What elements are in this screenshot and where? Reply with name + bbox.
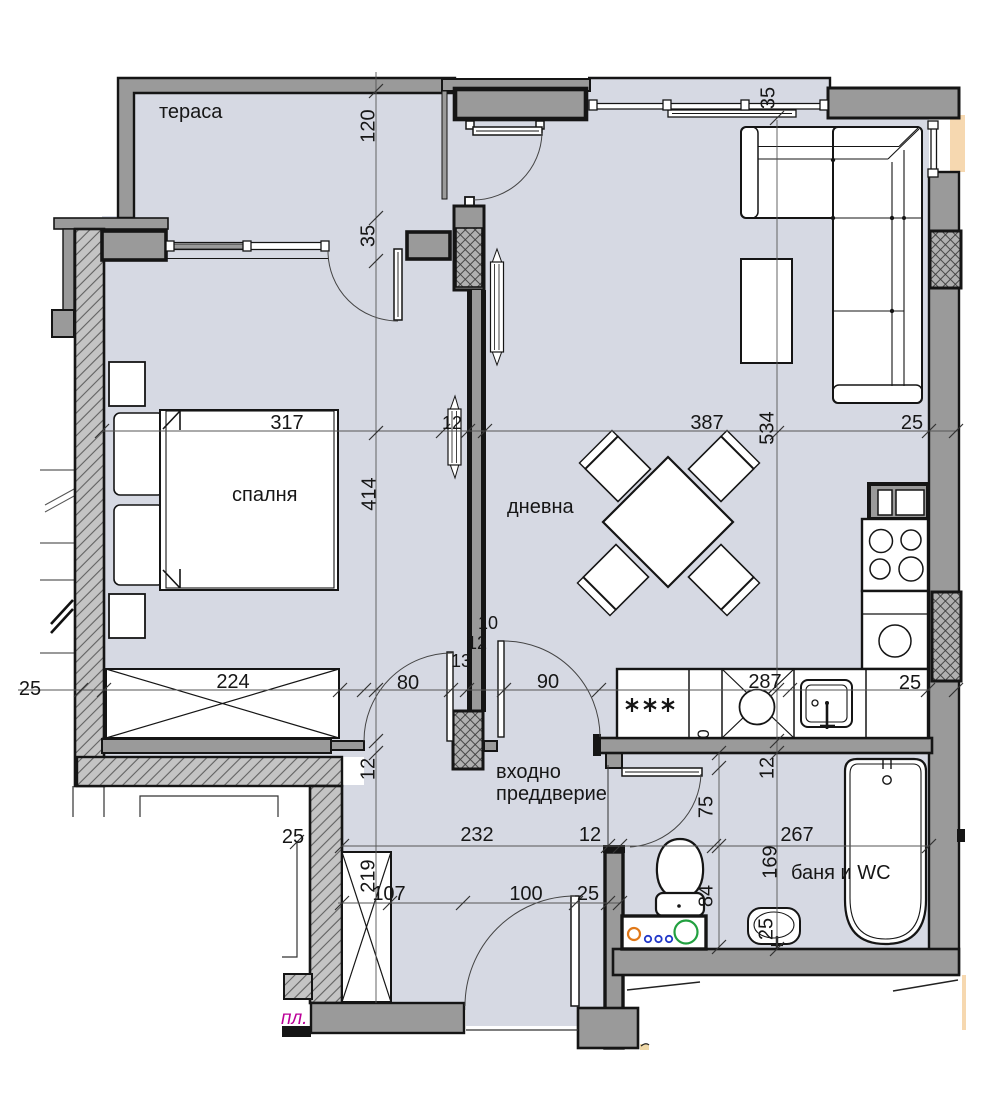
svg-text:баня и WC: баня и WC [791,862,891,884]
svg-text:224: 224 [216,671,249,693]
svg-text:преддверие: преддверие [496,783,607,805]
svg-text:25: 25 [577,883,599,905]
svg-text:25: 25 [19,678,41,700]
svg-text:35: 35 [357,225,379,247]
svg-text:35: 35 [757,87,779,109]
svg-text:107: 107 [372,883,405,905]
svg-text:входно: входно [496,761,561,783]
svg-text:25: 25 [899,672,921,694]
svg-text:дневна: дневна [507,496,575,518]
svg-text:267: 267 [780,824,813,846]
svg-text:317: 317 [270,412,303,434]
svg-text:287: 287 [748,671,781,693]
svg-text:25: 25 [901,412,923,434]
svg-text:90: 90 [537,671,559,693]
svg-text:12: 12 [442,413,462,433]
svg-text:75: 75 [695,796,717,818]
svg-text:120: 120 [357,109,379,142]
svg-text:169: 169 [759,845,781,878]
svg-text:12: 12 [467,633,487,653]
svg-text:534: 534 [756,411,778,444]
svg-text:тераса: тераса [159,101,223,123]
svg-text:232: 232 [460,824,493,846]
svg-text:12: 12 [579,824,601,846]
svg-text:12: 12 [357,758,379,780]
svg-text:80: 80 [397,672,419,694]
svg-text:спалня: спалня [232,484,298,506]
svg-text:10: 10 [478,613,498,633]
svg-text:387: 387 [690,412,723,434]
svg-text:13: 13 [451,651,471,671]
svg-text:25: 25 [282,826,304,848]
svg-text:84: 84 [695,885,717,907]
svg-text:12: 12 [756,757,778,779]
svg-text:25: 25 [755,918,777,940]
svg-text:0: 0 [694,729,713,738]
svg-text:пл.: пл. [281,1008,307,1029]
svg-text:100: 100 [509,883,542,905]
svg-text:414: 414 [358,477,380,510]
